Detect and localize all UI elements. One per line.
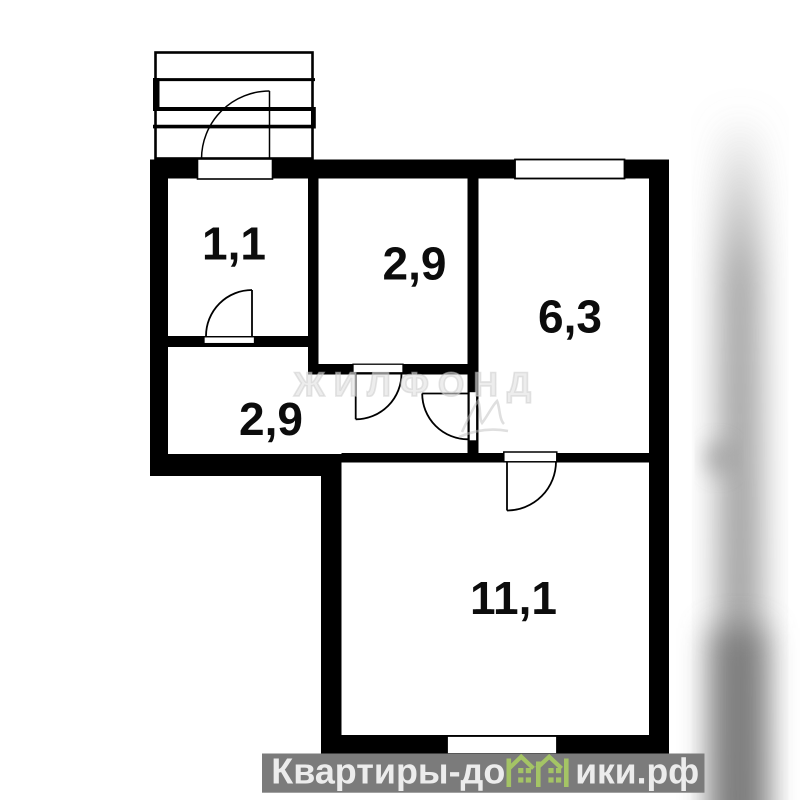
svg-text:11,1: 11,1	[470, 572, 557, 624]
svg-text:ики.рф: ики.рф	[575, 751, 699, 792]
svg-text:2,9: 2,9	[383, 238, 447, 290]
svg-text:1,1: 1,1	[202, 218, 266, 270]
svg-text:Квартиры-до: Квартиры-до	[271, 751, 505, 792]
svg-text:6,3: 6,3	[538, 291, 602, 343]
svg-text:ЖИЛФОНД: ЖИЛФОНД	[293, 366, 540, 404]
